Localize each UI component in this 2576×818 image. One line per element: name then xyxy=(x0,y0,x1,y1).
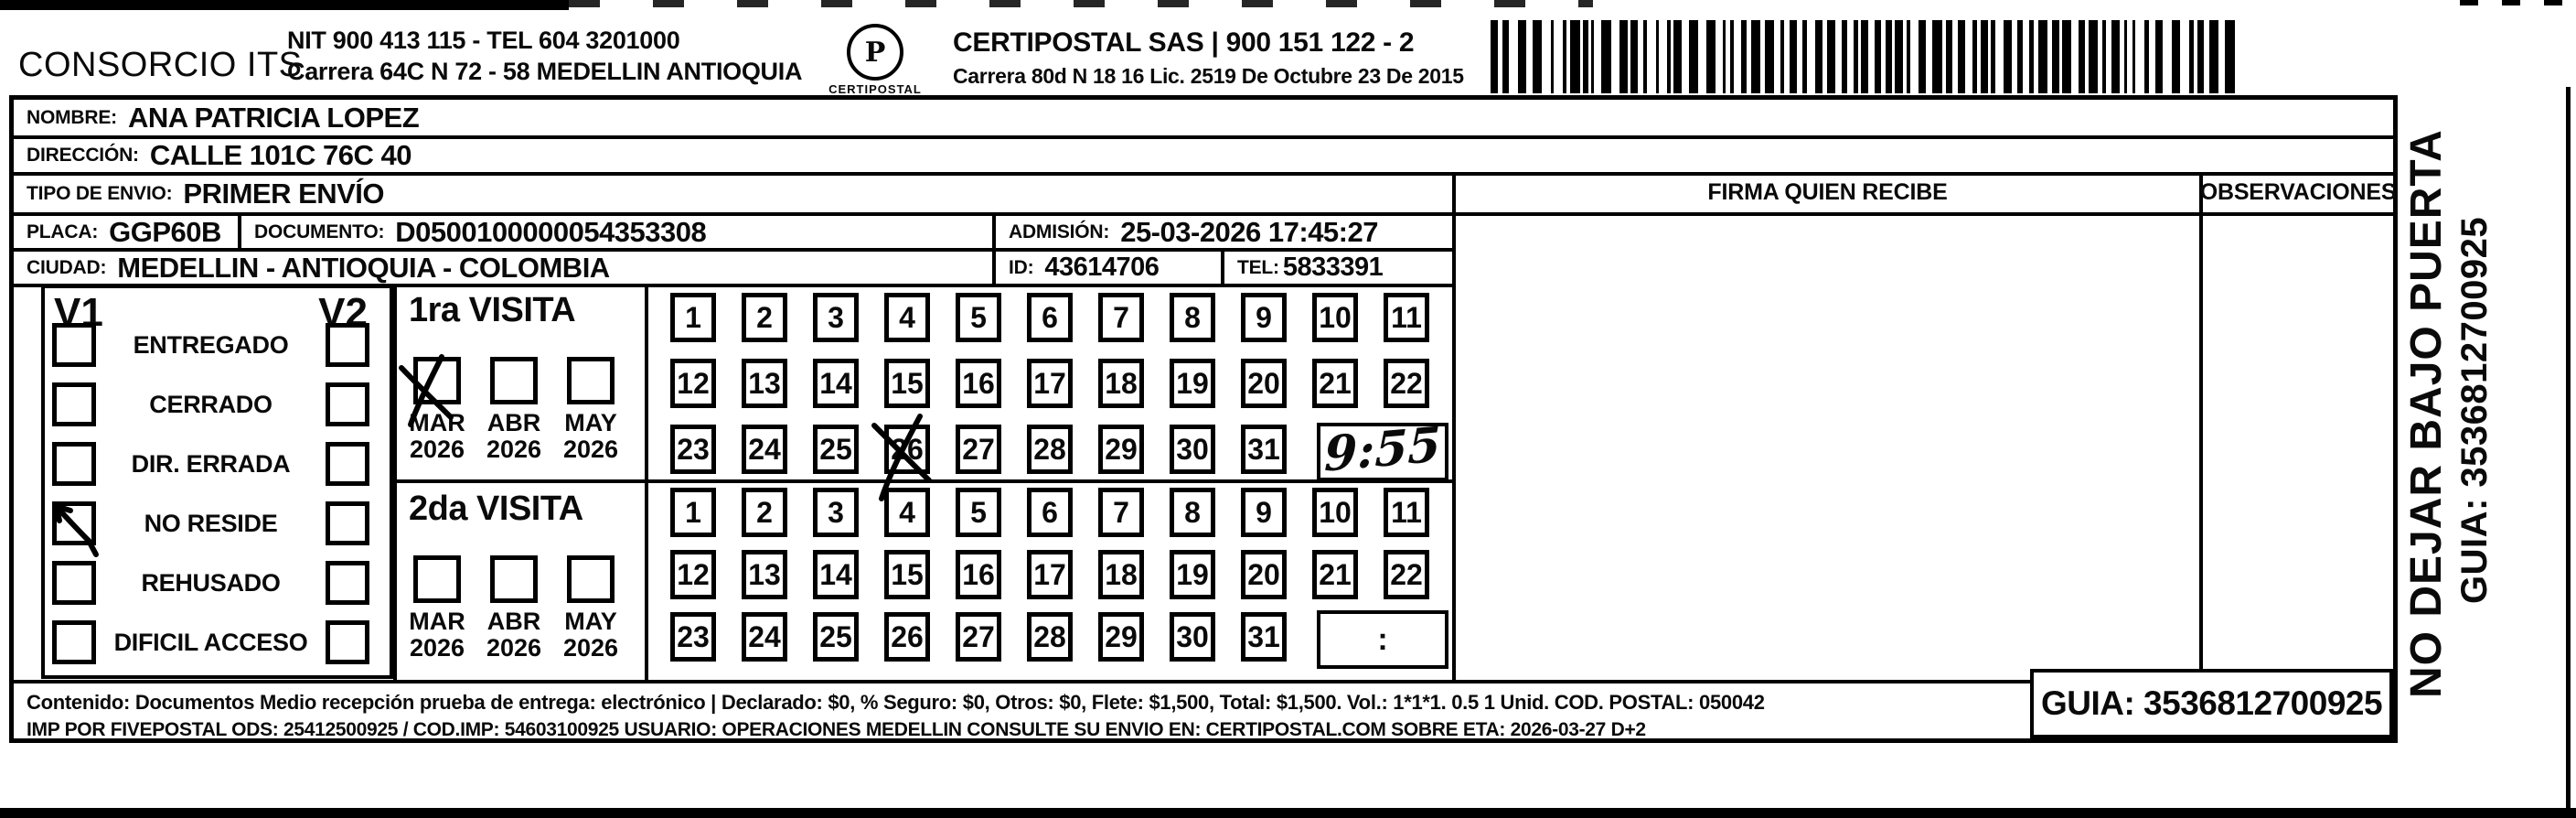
field-nombre: NOMBRE: ANA PATRICIA LOPEZ xyxy=(14,100,2406,135)
footer-line2: IMP POR FIVEPOSTAL ODS: 25412500925 / CO… xyxy=(27,719,2030,741)
day-cell-24: 24 xyxy=(742,425,787,474)
scan-artifact-right-line xyxy=(2566,87,2571,812)
day-cell-31: 31 xyxy=(1241,612,1287,662)
tipo-envio-label: TIPO DE ENVIO: xyxy=(27,183,172,205)
nombre-label: NOMBRE: xyxy=(27,107,117,129)
second-visit-time-box: : xyxy=(1317,610,1448,669)
id-label: ID: xyxy=(1009,257,1033,279)
placa-label: PLACA: xyxy=(27,221,98,243)
day-cell-23: 23 xyxy=(670,612,716,662)
first-visit-box: 1ra VISITA MAR2026ABR2026MAY2026 xyxy=(393,284,645,481)
company-nit-line: NIT 900 413 115 - TEL 604 3201000 xyxy=(287,25,802,56)
month-block: MAY2026 xyxy=(552,357,629,463)
documento-value: D0500100000054353308 xyxy=(395,216,706,248)
first-visit-months: MAR2026ABR2026MAY2026 xyxy=(399,357,629,463)
certipostal-logo-icon: P CERTIPOSTAL xyxy=(821,24,929,102)
field-admision: ADMISIÓN: 25-03-2026 17:45:27 xyxy=(996,216,1465,248)
company-contact-info: NIT 900 413 115 - TEL 604 3201000 Carrer… xyxy=(287,25,802,87)
day-row: 1213141516171819202122 xyxy=(670,550,1429,599)
month-year: 2026 xyxy=(552,436,629,463)
month-name: MAY xyxy=(552,410,629,436)
status-label: ENTREGADO xyxy=(96,331,326,360)
v1-checkbox-dificil-acceso xyxy=(52,620,96,664)
day-cell-30: 30 xyxy=(1170,612,1215,662)
day-row: 1234567891011 xyxy=(670,488,1429,537)
day-row: 1213141516171819202122 xyxy=(670,359,1429,408)
day-cell-2: 2 xyxy=(742,488,787,537)
status-label: DIFICIL ACCESO xyxy=(96,629,326,657)
second-visit-title: 2da VISITA xyxy=(409,490,583,529)
tel-value: 5833391 xyxy=(1283,253,1383,283)
day-cell-4: 4 xyxy=(884,293,930,342)
field-placa: PLACA: GGP60B xyxy=(14,216,251,248)
day-cell-27: 27 xyxy=(956,425,1001,474)
status-label: NO RESIDE xyxy=(96,510,326,538)
status-label: REHUSADO xyxy=(96,569,326,597)
status-label: CERRADO xyxy=(96,391,326,419)
day-cell-10: 10 xyxy=(1312,488,1358,537)
month-name: ABR xyxy=(476,410,552,436)
month-checkbox-mar xyxy=(413,357,461,404)
day-cell-6: 6 xyxy=(1027,293,1073,342)
second-visit-day-grid: : 12345678910111213141516171819202122232… xyxy=(645,482,1452,680)
v1-checkbox-rehusado xyxy=(52,561,96,605)
month-checkbox-may xyxy=(567,555,615,603)
field-ciudad: CIUDAD: MEDELLIN - ANTIOQUIA - COLOMBIA xyxy=(14,252,1005,284)
day-cell-16: 16 xyxy=(956,359,1001,408)
day-cell-7: 7 xyxy=(1098,488,1144,537)
month-checkbox-abr xyxy=(490,555,538,603)
day-cell-30: 30 xyxy=(1170,425,1215,474)
v2-checkbox-rehusado xyxy=(326,561,369,605)
scan-artifact-top-right-dashes xyxy=(2460,0,2576,5)
logo-wordmark: CERTIPOSTAL xyxy=(821,82,929,96)
field-id: ID: 43614706 xyxy=(996,252,1234,284)
day-cell-17: 17 xyxy=(1027,550,1073,599)
day-cell-23: 23 xyxy=(670,425,716,474)
v1-checkbox-dir-errada xyxy=(52,442,96,486)
month-year: 2026 xyxy=(399,436,476,463)
day-cell-12: 12 xyxy=(670,550,716,599)
field-tipo-envio: TIPO DE ENVIO: PRIMER ENVÍO xyxy=(14,176,1465,212)
day-cell-2: 2 xyxy=(742,293,787,342)
carrier-title: CERTIPOSTAL SAS | 900 151 122 - 2 xyxy=(953,27,1414,59)
day-cell-14: 14 xyxy=(813,359,859,408)
day-cell-21: 21 xyxy=(1312,550,1358,599)
month-year: 2026 xyxy=(552,634,629,662)
direccion-value: CALLE 101C 76C 40 xyxy=(150,139,412,172)
observaciones-header: OBSERVACIONES xyxy=(2203,172,2393,212)
firma-signature-area xyxy=(1456,212,2199,680)
month-checkbox-may xyxy=(567,357,615,404)
ciudad-label: CIUDAD: xyxy=(27,257,106,279)
direccion-label: DIRECCIÓN: xyxy=(27,145,139,167)
day-cell-1: 1 xyxy=(670,488,716,537)
status-row: ENTREGADO xyxy=(52,323,369,367)
month-block: MAY2026 xyxy=(552,555,629,662)
day-cell-24: 24 xyxy=(742,612,787,662)
day-cell-22: 22 xyxy=(1384,550,1429,599)
v2-checkbox-entregado xyxy=(326,323,369,367)
v1-checkbox-entregado xyxy=(52,323,96,367)
admision-value: 25-03-2026 17:45:27 xyxy=(1120,216,1378,248)
month-block: MAR2026 xyxy=(399,555,476,662)
scanned-delivery-form: CONSORCIO ITS NIT 900 413 115 - TEL 604 … xyxy=(0,0,2576,818)
nombre-value: ANA PATRICIA LOPEZ xyxy=(128,102,419,135)
day-cell-18: 18 xyxy=(1098,550,1144,599)
status-row: NO RESIDE xyxy=(52,501,369,545)
v2-checkbox-no-reside xyxy=(326,501,369,545)
month-checkbox-mar xyxy=(413,555,461,603)
day-cell-13: 13 xyxy=(742,550,787,599)
month-block: MAR2026 xyxy=(399,357,476,463)
day-row: 232425262728293031 xyxy=(670,612,1287,662)
day-cell-9: 9 xyxy=(1241,488,1287,537)
day-cell-6: 6 xyxy=(1027,488,1073,537)
month-name: MAR xyxy=(399,608,476,634)
field-documento: DOCUMENTO: D0500100000054353308 xyxy=(241,216,1005,248)
first-visit-day-grid: 9:55 12345678910111213141516171819202122… xyxy=(645,284,1452,481)
status-row: DIR. ERRADA xyxy=(52,442,369,486)
v2-checkbox-cerrado xyxy=(326,382,369,426)
day-cell-1: 1 xyxy=(670,293,716,342)
day-cell-26: 26 xyxy=(884,612,930,662)
day-cell-4: 4 xyxy=(884,488,930,537)
day-cell-7: 7 xyxy=(1098,293,1144,342)
status-rows: ENTREGADOCERRADODIR. ERRADANO RESIDEREHU… xyxy=(45,323,390,680)
field-direccion: DIRECCIÓN: CALLE 101C 76C 40 xyxy=(14,139,2406,172)
day-cell-18: 18 xyxy=(1098,359,1144,408)
first-visit-time-handwritten: 9:55 xyxy=(1324,416,1441,482)
day-cell-20: 20 xyxy=(1241,550,1287,599)
day-cell-11: 11 xyxy=(1384,293,1429,342)
month-block: ABR2026 xyxy=(476,357,552,463)
day-cell-19: 19 xyxy=(1170,359,1215,408)
day-cell-8: 8 xyxy=(1170,488,1215,537)
day-cell-3: 3 xyxy=(813,293,859,342)
day-cell-26: 26 xyxy=(884,425,930,474)
side-warning-text: NO DEJAR BAJO PUERTA xyxy=(2401,99,2454,728)
day-cell-16: 16 xyxy=(956,550,1001,599)
day-cell-28: 28 xyxy=(1027,612,1073,662)
scan-artifact-bottom-bar xyxy=(0,808,2576,818)
day-cell-22: 22 xyxy=(1384,359,1429,408)
day-cell-10: 10 xyxy=(1312,293,1358,342)
month-name: MAY xyxy=(552,608,629,634)
observaciones-area xyxy=(2203,212,2393,680)
firma-header: FIRMA QUIEN RECIBE xyxy=(1456,172,2199,212)
month-year: 2026 xyxy=(476,436,552,463)
day-cell-14: 14 xyxy=(813,550,859,599)
admision-label: ADMISIÓN: xyxy=(1009,221,1109,243)
v1-checkbox-no-reside xyxy=(52,501,96,545)
status-panel: V1 V2 ENTREGADOCERRADODIR. ERRADANO RESI… xyxy=(41,285,393,679)
day-cell-21: 21 xyxy=(1312,359,1358,408)
ciudad-value: MEDELLIN - ANTIOQUIA - COLOMBIA xyxy=(117,252,609,284)
v2-checkbox-dificil-acceso xyxy=(326,620,369,664)
tel-label: TEL: xyxy=(1237,257,1279,279)
day-cell-8: 8 xyxy=(1170,293,1215,342)
v2-checkbox-dir-errada xyxy=(326,442,369,486)
day-cell-20: 20 xyxy=(1241,359,1287,408)
day-cell-9: 9 xyxy=(1241,293,1287,342)
day-cell-15: 15 xyxy=(884,359,930,408)
day-cell-5: 5 xyxy=(956,488,1001,537)
footer-line1: Contenido: Documentos Medio recepción pr… xyxy=(27,691,2030,715)
day-cell-17: 17 xyxy=(1027,359,1073,408)
day-cell-19: 19 xyxy=(1170,550,1215,599)
status-label: DIR. ERRADA xyxy=(96,450,326,479)
first-visit-time-box: 9:55 xyxy=(1317,423,1448,481)
footer-fine-print: Contenido: Documentos Medio recepción pr… xyxy=(14,682,2030,738)
second-visit-months: MAR2026ABR2026MAY2026 xyxy=(399,555,629,662)
side-guia-text: GUIA: 3536812700925 xyxy=(2454,117,2496,703)
status-row: REHUSADO xyxy=(52,561,369,605)
day-cell-25: 25 xyxy=(813,425,859,474)
day-cell-11: 11 xyxy=(1384,488,1429,537)
tipo-envio-value: PRIMER ENVÍO xyxy=(183,178,384,210)
day-cell-13: 13 xyxy=(742,359,787,408)
company-address-line: Carrera 64C N 72 - 58 MEDELLIN ANTIOQUIA xyxy=(287,56,802,87)
day-cell-29: 29 xyxy=(1098,425,1144,474)
day-cell-31: 31 xyxy=(1241,425,1287,474)
logo-circle-glyph: P xyxy=(847,24,903,81)
second-visit-box: 2da VISITA MAR2026ABR2026MAY2026 xyxy=(393,482,645,680)
day-cell-29: 29 xyxy=(1098,612,1144,662)
placa-value: GGP60B xyxy=(109,216,221,248)
day-cell-3: 3 xyxy=(813,488,859,537)
scan-artifact-top-bar xyxy=(0,0,569,10)
status-row: DIFICIL ACCESO xyxy=(52,620,369,664)
status-row: CERRADO xyxy=(52,382,369,426)
id-value: 43614706 xyxy=(1044,253,1159,283)
day-cell-15: 15 xyxy=(884,550,930,599)
carrier-address-line: Carrera 80d N 18 16 Lic. 2519 De Octubre… xyxy=(953,64,1464,89)
day-cell-25: 25 xyxy=(813,612,859,662)
company-name: CONSORCIO ITS xyxy=(18,46,303,85)
field-tel: TEL: 5833391 xyxy=(1224,252,1465,284)
documento-label: DOCUMENTO: xyxy=(254,221,384,243)
month-checkbox-abr xyxy=(490,357,538,404)
month-block: ABR2026 xyxy=(476,555,552,662)
day-cell-12: 12 xyxy=(670,359,716,408)
day-cell-28: 28 xyxy=(1027,425,1073,474)
day-row: 232425262728293031 xyxy=(670,425,1287,474)
month-name: ABR xyxy=(476,608,552,634)
month-year: 2026 xyxy=(399,634,476,662)
form-table: NOMBRE: ANA PATRICIA LOPEZ DIRECCIÓN: CA… xyxy=(9,95,2398,743)
guia-number-box: GUIA: 3536812700925 xyxy=(2030,669,2393,738)
day-cell-5: 5 xyxy=(956,293,1001,342)
v1-checkbox-cerrado xyxy=(52,382,96,426)
day-row: 1234567891011 xyxy=(670,293,1429,342)
month-year: 2026 xyxy=(476,634,552,662)
day-cell-27: 27 xyxy=(956,612,1001,662)
month-name: MAR xyxy=(399,410,476,436)
first-visit-title: 1ra VISITA xyxy=(409,291,575,330)
scan-artifact-top-dashes xyxy=(569,0,1593,7)
barcode-icon xyxy=(1491,20,2233,93)
